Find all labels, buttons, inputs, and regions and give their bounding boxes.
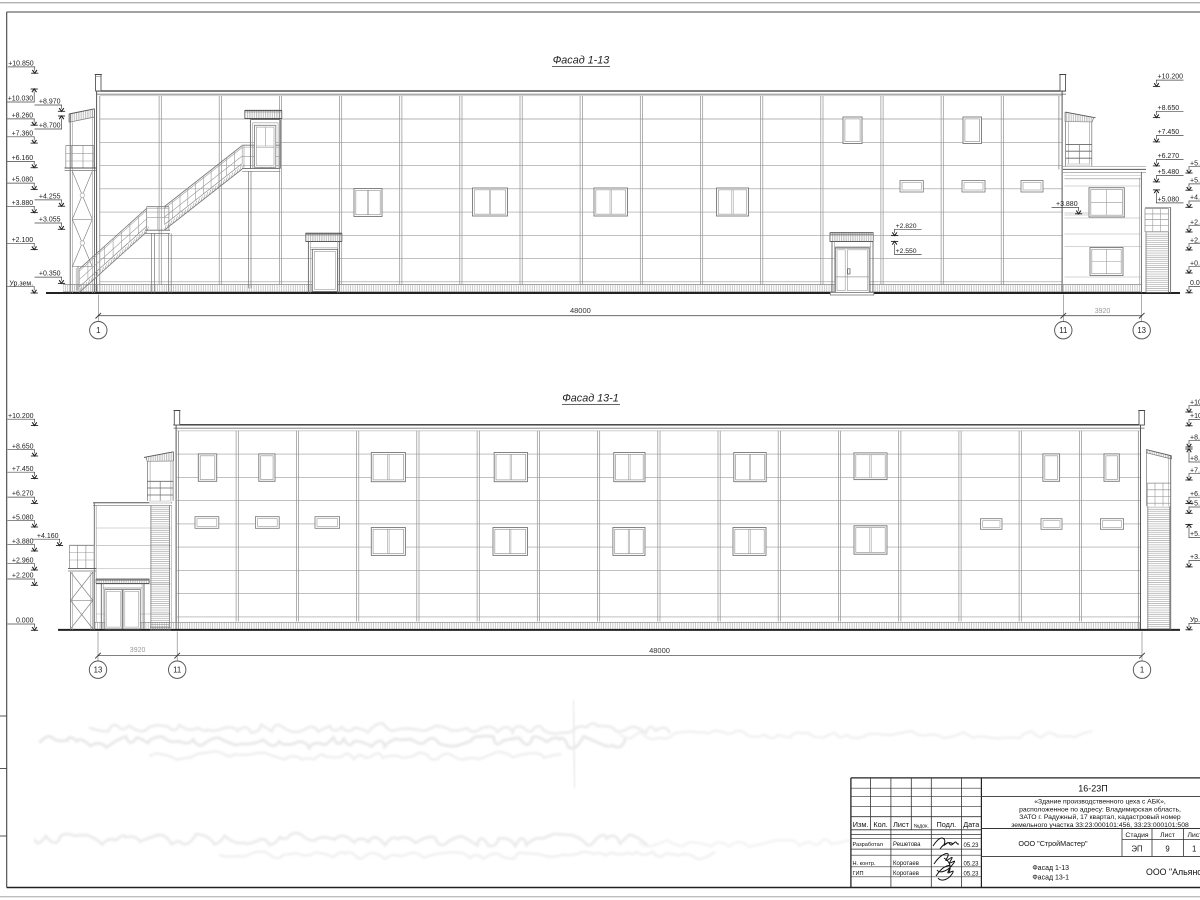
svg-text:+0.350: +0.350 — [39, 271, 61, 278]
svg-text:11: 11 — [173, 666, 181, 675]
svg-text:+5.650: +5.650 — [1190, 160, 1200, 167]
svg-text:ЭП: ЭП — [1131, 845, 1142, 854]
svg-text:+4.255: +4.255 — [39, 194, 61, 201]
svg-text:Кол.: Кол. — [873, 820, 887, 829]
svg-text:Дата: Дата — [963, 820, 980, 829]
svg-text:+5.080: +5.080 — [1190, 178, 1200, 185]
svg-text:Коротаев: Коротаев — [893, 861, 919, 867]
svg-text:05.23: 05.23 — [963, 862, 979, 868]
svg-text:05.23: 05.23 — [963, 872, 979, 878]
svg-text:Стадия: Стадия — [1125, 832, 1148, 839]
svg-text:+8.700: +8.700 — [39, 123, 61, 130]
svg-text:Фасад 13-1: Фасад 13-1 — [562, 393, 619, 405]
svg-text:+3.055: +3.055 — [39, 217, 61, 224]
svg-text:+8.650: +8.650 — [1190, 434, 1200, 441]
svg-text:+10.200: +10.200 — [1190, 413, 1200, 420]
svg-text:+8.970: +8.970 — [39, 99, 61, 106]
svg-text:«Здание производственного цеха: «Здание производственного цеха с АБК», — [1034, 799, 1166, 806]
svg-text:+6.270: +6.270 — [12, 491, 34, 498]
svg-text:ООО "Альянс": ООО "Альянс" — [1146, 867, 1200, 877]
svg-text:Подл.: Подл. — [936, 820, 956, 829]
svg-text:9: 9 — [1165, 845, 1169, 854]
svg-text:48000: 48000 — [570, 306, 591, 315]
svg-text:+7.450: +7.450 — [1158, 129, 1180, 136]
svg-text:+2.820: +2.820 — [1190, 219, 1200, 226]
svg-text:+2.550: +2.550 — [1190, 237, 1200, 244]
svg-text:+6.160: +6.160 — [12, 155, 34, 162]
svg-text:Лист: Лист — [1188, 832, 1200, 839]
svg-text:+5.080: +5.080 — [12, 177, 34, 184]
svg-text:расположенное по адресу: Влади: расположенное по адресу: Владимирская об… — [1019, 805, 1181, 813]
svg-text:+3.880: +3.880 — [12, 538, 34, 545]
svg-text:Фасад 1-13: Фасад 1-13 — [1032, 865, 1069, 872]
svg-text:+2.550: +2.550 — [896, 248, 917, 255]
svg-text:11: 11 — [1059, 326, 1067, 335]
svg-text:+8.650: +8.650 — [1158, 105, 1180, 112]
svg-text:1: 1 — [1140, 666, 1144, 675]
svg-text:Н. контр.: Н. контр. — [853, 861, 877, 867]
svg-text:+7.450: +7.450 — [1190, 467, 1200, 474]
svg-text:Фасад 13-1: Фасад 13-1 — [1032, 874, 1069, 881]
svg-text:13: 13 — [1137, 326, 1146, 335]
svg-text:3920: 3920 — [1095, 308, 1111, 315]
svg-text:ООО "СтройМастер": ООО "СтройМастер" — [1018, 839, 1088, 848]
svg-text:48000: 48000 — [649, 646, 670, 655]
svg-text:Ур.зем.: Ур.зем. — [9, 280, 33, 287]
svg-text:Лист: Лист — [1160, 832, 1175, 839]
svg-text:+5.080: +5.080 — [1158, 197, 1180, 204]
svg-text:№док.: №док. — [914, 824, 929, 830]
svg-text:+3.880: +3.880 — [1190, 554, 1200, 561]
svg-text:+7.450: +7.450 — [12, 466, 34, 473]
svg-text:1: 1 — [1192, 845, 1196, 854]
svg-text:+4.160: +4.160 — [37, 533, 59, 540]
svg-text:Фасад 1-13: Фасад 1-13 — [553, 55, 610, 67]
svg-text:+10.200: +10.200 — [1158, 74, 1184, 81]
svg-text:Коротаев: Коротаев — [893, 871, 919, 877]
svg-text:+2.100: +2.100 — [12, 237, 34, 244]
svg-text:+4.255: +4.255 — [1190, 195, 1200, 202]
svg-text:+8.650: +8.650 — [12, 443, 34, 450]
svg-text:+8.260: +8.260 — [1190, 456, 1200, 463]
svg-text:+6.270: +6.270 — [1158, 153, 1180, 160]
svg-text:1: 1 — [96, 326, 100, 335]
svg-text:+3.880: +3.880 — [12, 200, 34, 207]
svg-text:Решетова: Решетова — [893, 842, 921, 848]
svg-text:+10.200: +10.200 — [8, 413, 34, 420]
svg-text:+10.030: +10.030 — [8, 96, 34, 103]
svg-text:13: 13 — [94, 666, 103, 675]
svg-text:+6.270: +6.270 — [1190, 491, 1200, 498]
svg-text:16-23П: 16-23П — [1078, 784, 1108, 794]
svg-text:+5.480: +5.480 — [1158, 169, 1180, 176]
svg-text:+5.480: +5.480 — [1190, 501, 1200, 508]
svg-text:+8.260: +8.260 — [12, 113, 34, 120]
svg-text:+5.080: +5.080 — [12, 514, 34, 521]
svg-text:+2.200: +2.200 — [12, 573, 34, 580]
svg-text:+10.850: +10.850 — [1190, 399, 1200, 406]
svg-text:ЗАТО г. Радужный, 17 квартал,: ЗАТО г. Радужный, 17 квартал, кадастровы… — [1019, 813, 1181, 821]
svg-text:земельного участка 33:23:00010: земельного участка 33:23:000101:456, 33:… — [1011, 822, 1189, 829]
svg-text:+3.880: +3.880 — [1056, 201, 1078, 208]
svg-text:ГИП: ГИП — [853, 871, 864, 877]
svg-text:Лист: Лист — [893, 820, 910, 829]
svg-text:+2.820: +2.820 — [896, 223, 917, 230]
svg-text:Изм.: Изм. — [853, 820, 869, 829]
svg-text:Ур.зем.: Ур.зем. — [1190, 617, 1200, 624]
svg-text:0.000: 0.000 — [16, 618, 34, 625]
svg-text:Разработал: Разработал — [853, 842, 883, 848]
svg-text:+5.080: +5.080 — [1190, 531, 1200, 538]
svg-text:0.000: 0.000 — [1190, 280, 1200, 287]
svg-text:+10.850: +10.850 — [8, 61, 34, 68]
svg-text:3920: 3920 — [130, 647, 146, 654]
svg-text:+2.960: +2.960 — [12, 557, 34, 564]
svg-text:+7.360: +7.360 — [12, 130, 34, 137]
svg-text:05.23: 05.23 — [963, 843, 979, 849]
svg-text:+0.350: +0.350 — [1190, 260, 1200, 267]
